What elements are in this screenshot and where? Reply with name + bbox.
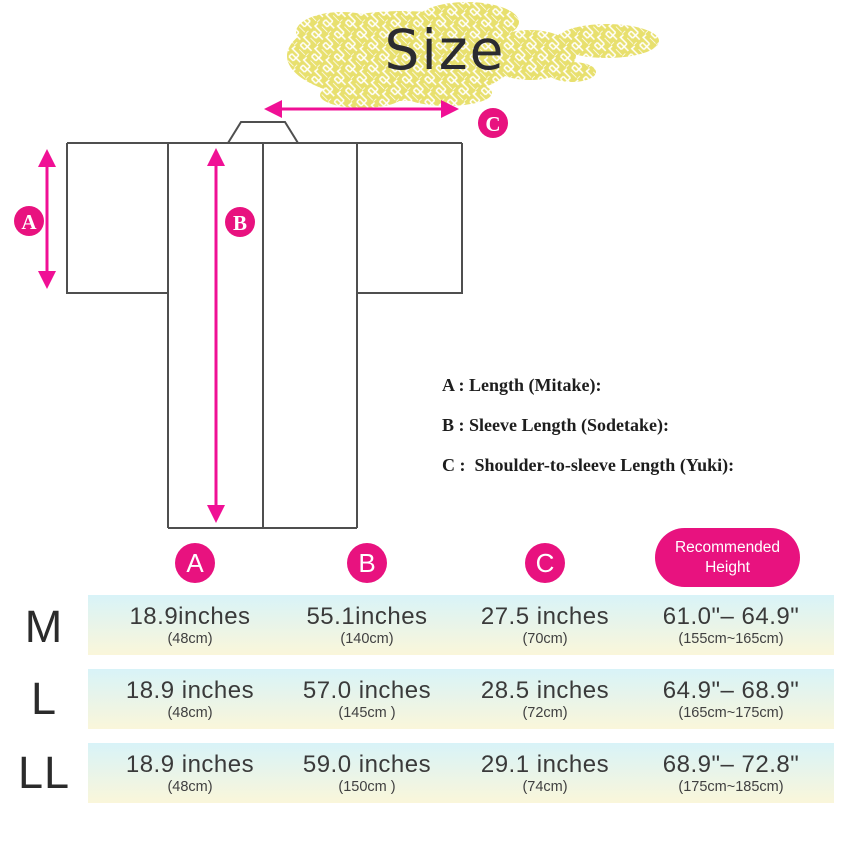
header-col-b-label: B <box>358 548 375 579</box>
yuki-cm: (72cm) <box>442 705 648 721</box>
cell-ll-yuki: 29.1 inches (74cm) <box>442 751 648 795</box>
cell-ll-height: 68.9"– 72.8" (175cm~185cm) <box>648 751 814 795</box>
kimono-collar <box>228 122 298 143</box>
length-cm: (48cm) <box>88 705 292 721</box>
length-value: 18.9 inches <box>88 751 292 779</box>
marker-b-letter: B <box>233 211 247 235</box>
row-label-m: M <box>10 597 78 657</box>
sleeve-cm: (145cm ) <box>292 705 442 721</box>
height-cm: (165cm~175cm) <box>648 705 814 721</box>
row-label-l: L <box>10 669 78 729</box>
marker-c-letter: C <box>485 112 500 136</box>
legend-item-b: B : Sleeve Length (Sodetake): <box>442 411 734 451</box>
yuki-value: 29.1 inches <box>442 751 648 779</box>
recommended-height-badge: Recommended Height <box>655 528 800 587</box>
height-value: 61.0"– 64.9" <box>648 603 814 631</box>
yuki-cm: (70cm) <box>442 631 648 647</box>
height-value: 64.9"– 68.9" <box>648 677 814 705</box>
row-label-ll: LL <box>10 743 78 803</box>
sleeve-value: 59.0 inches <box>292 751 442 779</box>
cell-m-height: 61.0"– 64.9" (155cm~165cm) <box>648 603 814 647</box>
length-value: 18.9inches <box>88 603 292 631</box>
sleeve-cm: (150cm ) <box>292 779 442 795</box>
cell-l-yuki: 28.5 inches (72cm) <box>442 677 648 721</box>
cell-ll-sleeve: 59.0 inches (150cm ) <box>292 751 442 795</box>
cell-ll-length: 18.9 inches (48cm) <box>88 751 292 795</box>
header-col-a-label: A <box>186 548 203 579</box>
cell-l-height: 64.9"– 68.9" (165cm~175cm) <box>648 677 814 721</box>
sleeve-value: 57.0 inches <box>292 677 442 705</box>
length-cm: (48cm) <box>88 631 292 647</box>
cell-m-sleeve: 55.1inches (140cm) <box>292 603 442 647</box>
size-row-m: 18.9inches (48cm) 55.1inches (140cm) 27.… <box>88 595 834 655</box>
header-col-a-badge: A <box>175 543 215 583</box>
height-value: 68.9"– 72.8" <box>648 751 814 779</box>
sleeve-cm: (140cm) <box>292 631 442 647</box>
cell-m-length: 18.9inches (48cm) <box>88 603 292 647</box>
yuki-cm: (74cm) <box>442 779 648 795</box>
yuki-value: 28.5 inches <box>442 677 648 705</box>
legend-item-c: C : Shoulder-to-sleeve Length (Yuki): <box>442 451 734 491</box>
height-cm: (175cm~185cm) <box>648 779 814 795</box>
legend-item-a: A : Length (Mitake): <box>442 371 734 411</box>
length-value: 18.9 inches <box>88 677 292 705</box>
recommended-height-label: Recommended Height <box>669 538 786 577</box>
header-col-b-badge: B <box>347 543 387 583</box>
sleeve-value: 55.1inches <box>292 603 442 631</box>
header-col-c-badge: C <box>525 543 565 583</box>
cell-l-length: 18.9 inches (48cm) <box>88 677 292 721</box>
height-cm: (155cm~165cm) <box>648 631 814 647</box>
cell-m-yuki: 27.5 inches (70cm) <box>442 603 648 647</box>
size-row-ll: 18.9 inches (48cm) 59.0 inches (150cm ) … <box>88 743 834 803</box>
marker-a-letter: A <box>21 210 37 234</box>
length-cm: (48cm) <box>88 779 292 795</box>
yuki-value: 27.5 inches <box>442 603 648 631</box>
header-col-c-label: C <box>536 548 555 579</box>
size-row-l: 18.9 inches (48cm) 57.0 inches (145cm ) … <box>88 669 834 729</box>
cell-l-sleeve: 57.0 inches (145cm ) <box>292 677 442 721</box>
kimono-size-chart: Size A B <box>0 0 850 850</box>
measurement-legend: A : Length (Mitake): B : Sleeve Length (… <box>442 371 734 491</box>
kimono-outline <box>67 122 462 528</box>
